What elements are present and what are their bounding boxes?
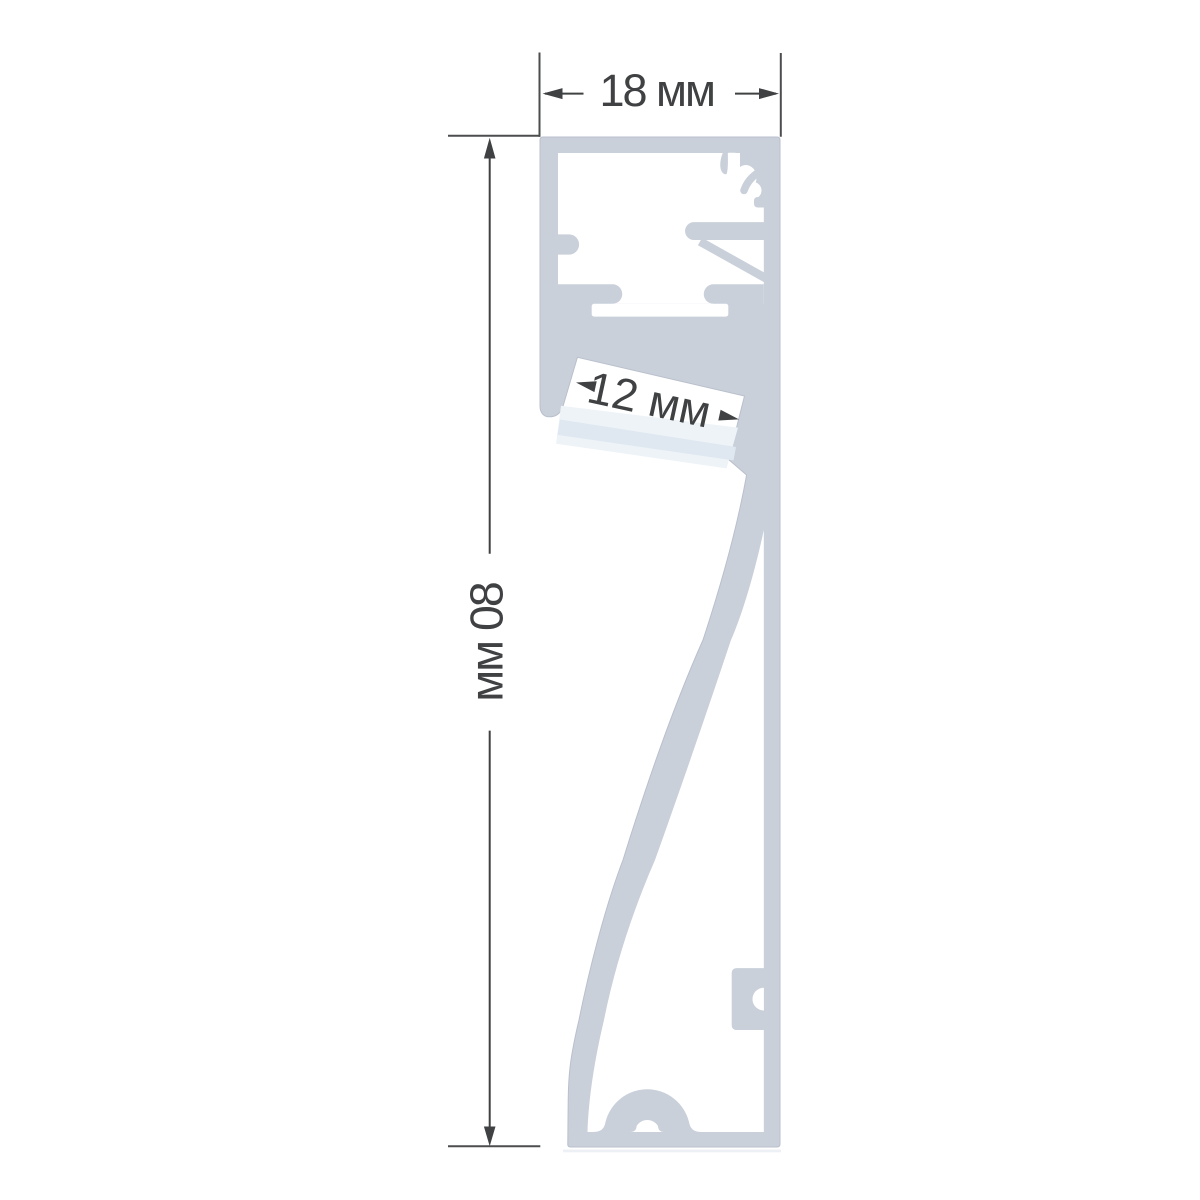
svg-text:18 мм: 18 мм	[599, 65, 713, 116]
svg-text:мм 08: мм 08	[461, 583, 513, 702]
